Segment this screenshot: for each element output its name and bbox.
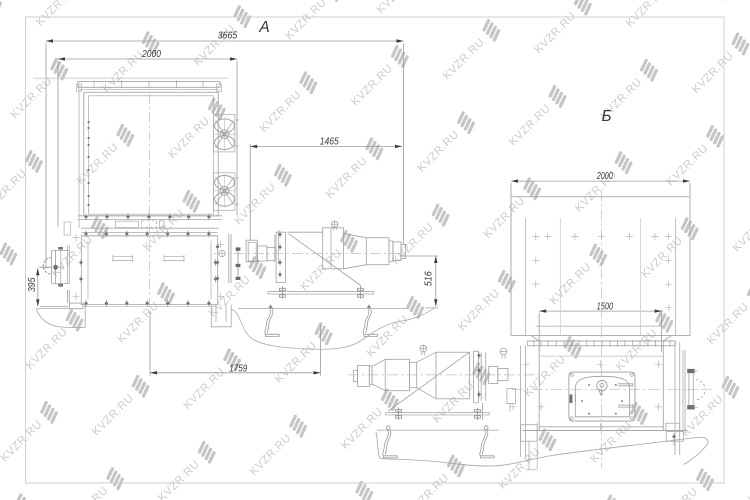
- svg-text:516: 516: [423, 271, 434, 286]
- svg-text:1465: 1465: [320, 137, 339, 148]
- svg-text:Б: Б: [601, 108, 611, 125]
- svg-text:1759: 1759: [229, 364, 247, 375]
- svg-text:395: 395: [27, 277, 38, 292]
- svg-text:2000: 2000: [141, 49, 161, 60]
- svg-text:1500: 1500: [597, 302, 614, 313]
- svg-text:2000: 2000: [596, 171, 613, 182]
- svg-text:3665: 3665: [218, 31, 238, 42]
- svg-text:A: A: [258, 19, 269, 36]
